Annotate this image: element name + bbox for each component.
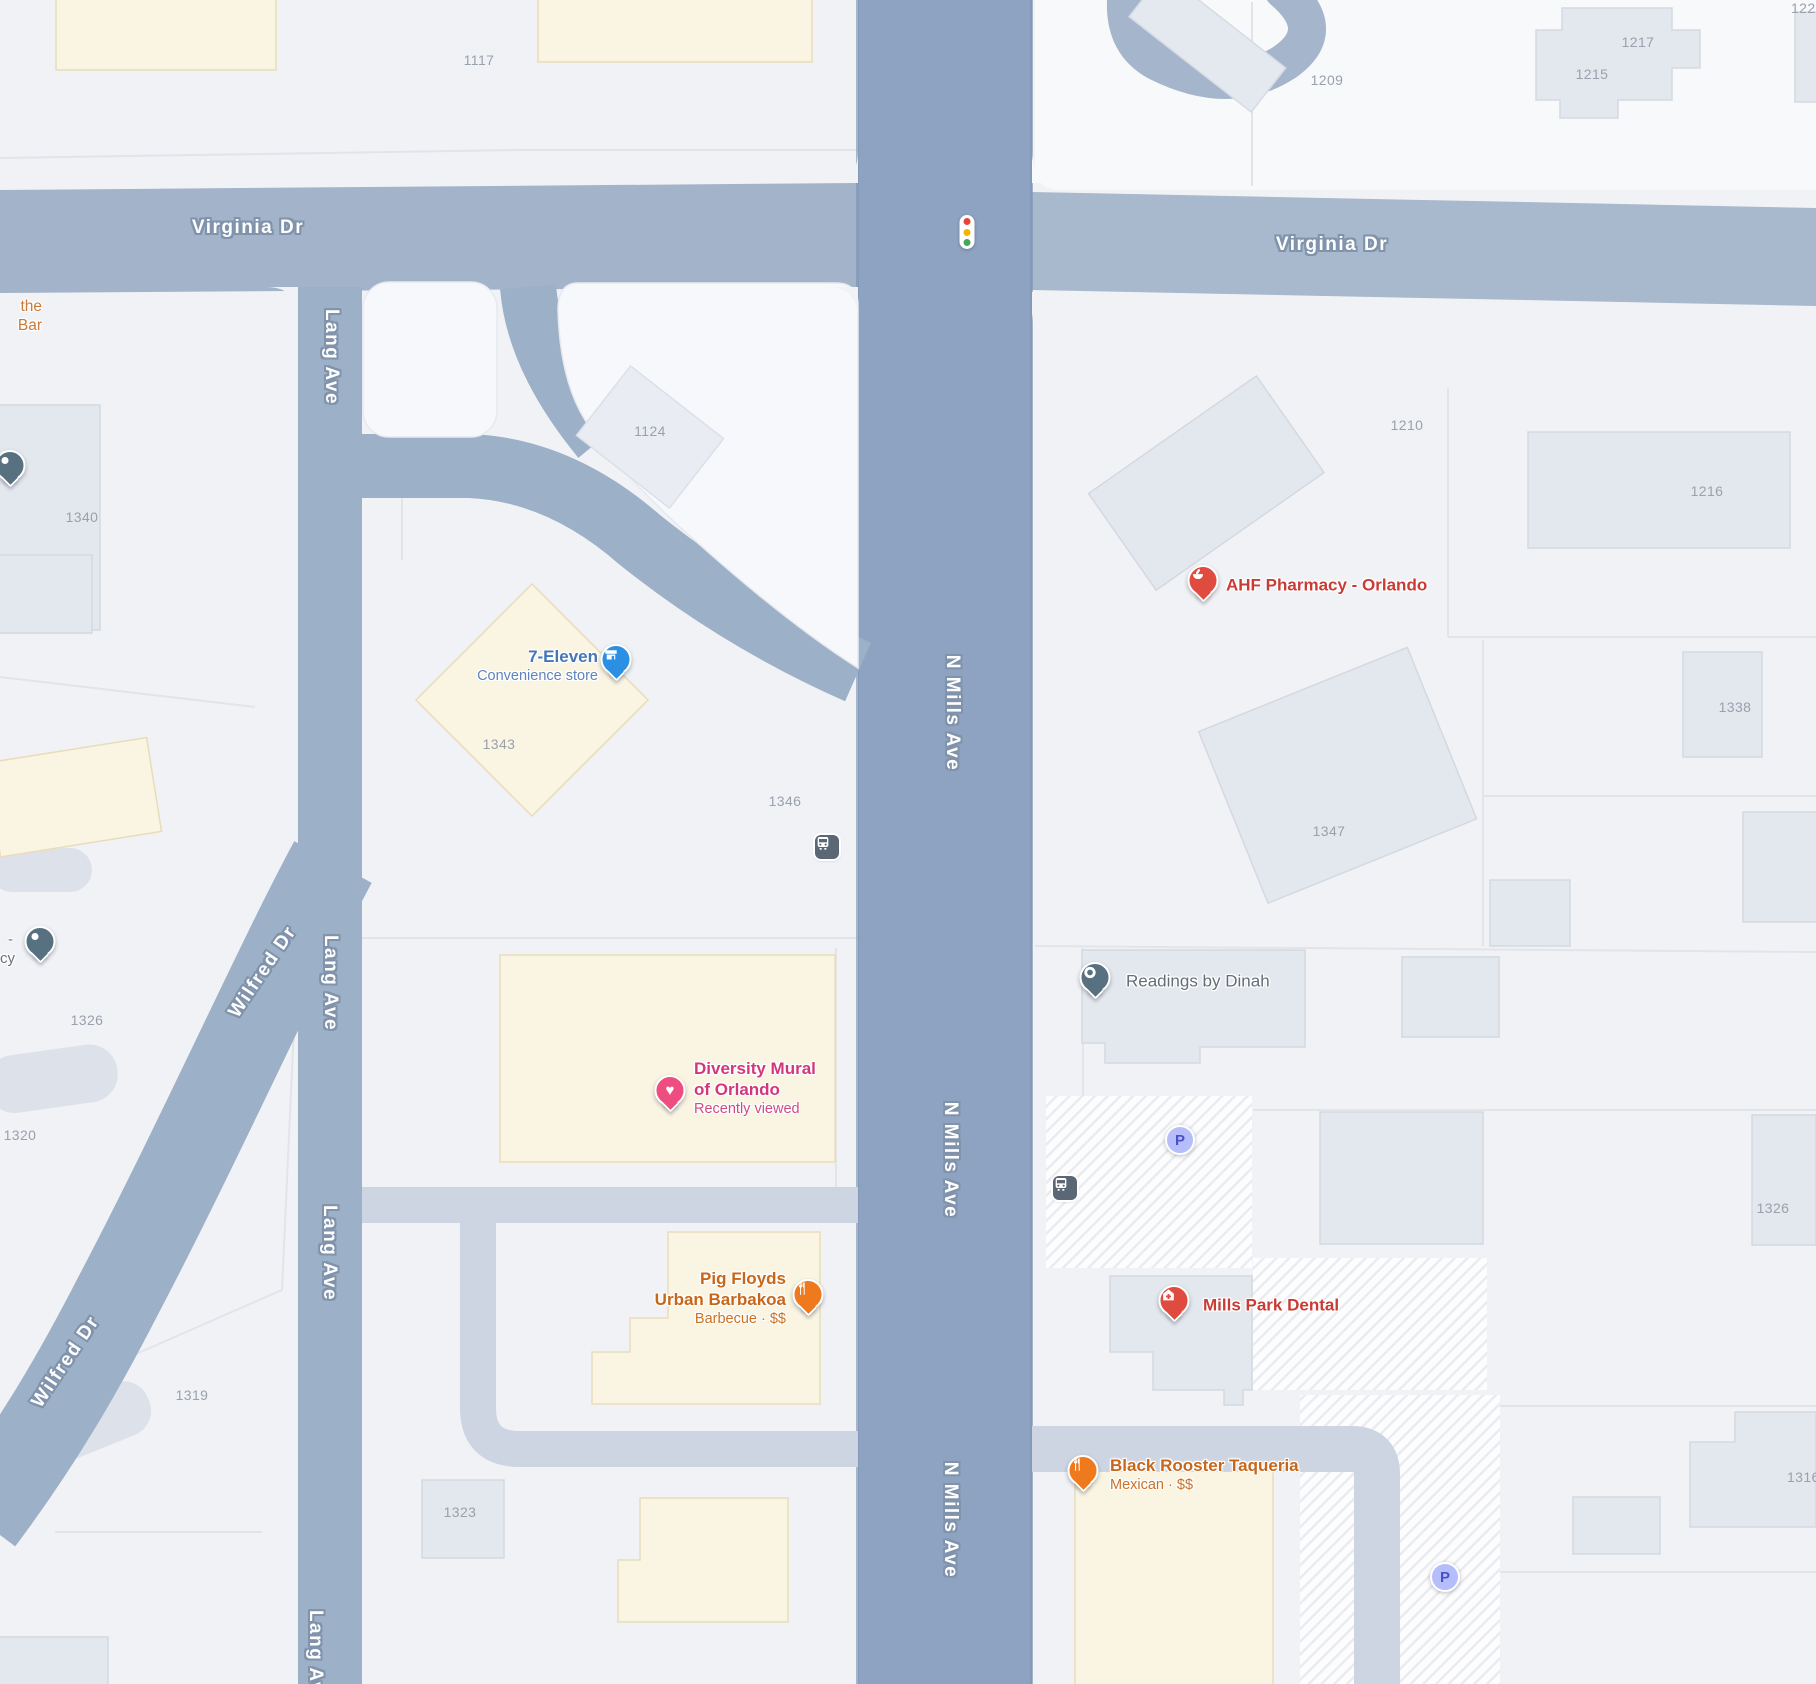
poi-dental-name[interactable]: Mills Park Dental	[1203, 1295, 1339, 1316]
road-label-virginia-dr-east: Virginia Dr	[1276, 234, 1388, 256]
parking-p-label: P	[1440, 1569, 1450, 1586]
address-1326-left: 1326	[71, 1012, 104, 1028]
mills-park-dental-pin[interactable]	[1159, 1285, 1190, 1316]
poi-label-readings[interactable]: Readings by Dinah	[1126, 971, 1270, 992]
poi-mural-status: Recently viewed	[694, 1100, 816, 1119]
parking-p-label: P	[1175, 1132, 1185, 1149]
address-122x: 122	[1791, 0, 1816, 16]
poi-pig-name-2[interactable]: Urban Barbakoa	[655, 1289, 786, 1310]
address-1347: 1347	[1313, 823, 1346, 839]
address-1215: 1215	[1576, 66, 1609, 82]
road-n-mills-ave	[858, 0, 1032, 1684]
poi-mural-name-2[interactable]: of Orlando	[694, 1079, 816, 1100]
seven-eleven-pin[interactable]	[601, 644, 632, 675]
address-1117: 1117	[464, 52, 495, 68]
address-1343: 1343	[483, 736, 516, 752]
poi-label-mills-park-dental[interactable]: Mills Park Dental	[1203, 1295, 1339, 1316]
address-1217: 1217	[1622, 34, 1655, 50]
ahf-pharmacy-pin[interactable]	[1188, 565, 1219, 596]
poi-label-black-rooster[interactable]: Black Rooster Taqueria Mexican · $$	[1110, 1455, 1299, 1495]
diversity-mural-pin[interactable]: ♥	[655, 1075, 686, 1106]
poi-readings-name[interactable]: Readings by Dinah	[1126, 971, 1270, 992]
parking-icon-1[interactable]: P	[1165, 1125, 1195, 1155]
poi-label-ahf-pharmacy[interactable]: AHF Pharmacy - Orlando	[1226, 575, 1427, 596]
road-label-virginia-dr-west: Virginia Dr	[192, 217, 304, 239]
black-rooster-pin[interactable]	[1068, 1455, 1099, 1486]
road-label-lang-4: Lang Ave	[304, 1610, 326, 1684]
poi-label-diversity-mural[interactable]: Diversity Mural of Orlando Recently view…	[694, 1058, 816, 1119]
pig-floyds-pin[interactable]	[793, 1279, 824, 1310]
address-1340: 1340	[66, 509, 99, 525]
poi-ahf-name[interactable]: AHF Pharmacy - Orlando	[1226, 575, 1427, 596]
address-1316: 1316	[1787, 1469, 1816, 1485]
poi-pig-category: Barbecue · $$	[655, 1310, 786, 1329]
map-canvas[interactable]: Virginia Dr Virginia Dr N Mills Ave N Mi…	[0, 0, 1816, 1684]
bus-stop-icon-2[interactable]	[1053, 1176, 1077, 1200]
map-base	[0, 0, 1816, 1684]
poi-rooster-name[interactable]: Black Rooster Taqueria	[1110, 1455, 1299, 1476]
poi-partial-cy-line2[interactable]: cy	[0, 949, 13, 968]
traffic-light-icon	[960, 215, 975, 249]
poi-rooster-category: Mexican · $$	[1110, 1476, 1299, 1495]
address-1338: 1338	[1719, 699, 1752, 715]
poi-label-partial-bar[interactable]: the Bar	[0, 297, 42, 335]
readings-pin[interactable]	[1080, 962, 1111, 993]
address-1319: 1319	[176, 1387, 209, 1403]
address-1323: 1323	[444, 1504, 477, 1520]
address-1346: 1346	[769, 793, 802, 809]
poi-partial-cy-line1[interactable]: -	[0, 930, 13, 949]
parking-icon-2[interactable]: P	[1430, 1562, 1460, 1592]
bus-stop-icon-1[interactable]	[815, 835, 839, 859]
road-label-lang-1: Lang Ave	[320, 309, 342, 405]
poi-label-pig-floyds[interactable]: Pig Floyds Urban Barbakoa Barbecue · $$	[655, 1268, 786, 1329]
poi-mural-name-1[interactable]: Diversity Mural	[694, 1058, 816, 1079]
heart-icon: ♥	[666, 1083, 675, 1098]
road-label-n-mills-1: N Mills Ave	[941, 655, 963, 771]
address-1326-right: 1326	[1757, 1200, 1790, 1216]
road-label-n-mills-2: N Mills Ave	[939, 1102, 961, 1218]
poi-7-eleven-category: Convenience store	[477, 667, 598, 686]
road-label-lang-3: Lang Ave	[318, 1205, 340, 1301]
address-1216: 1216	[1691, 483, 1724, 499]
bus-icon	[815, 835, 831, 851]
poi-label-7-eleven[interactable]: 7-Eleven Convenience store	[477, 646, 598, 686]
road-label-lang-2: Lang Ave	[319, 935, 341, 1031]
bus-icon	[1053, 1176, 1069, 1192]
building-1216	[1528, 432, 1790, 548]
address-1209: 1209	[1311, 72, 1344, 88]
building-readings	[1082, 950, 1305, 1063]
address-1320: 1320	[4, 1127, 37, 1143]
road-virginia-dr-east	[1032, 192, 1816, 306]
poi-partial-bar-line1[interactable]: the	[0, 297, 42, 316]
left-edge-pin-2[interactable]	[25, 926, 56, 957]
poi-label-partial-cy[interactable]: - cy	[0, 930, 13, 968]
poi-partial-bar-line2[interactable]: Bar	[0, 316, 42, 335]
poi-pig-name-1[interactable]: Pig Floyds	[655, 1268, 786, 1289]
road-label-n-mills-3: N Mills Ave	[939, 1462, 961, 1578]
poi-7-eleven-name[interactable]: 7-Eleven	[477, 646, 598, 667]
road-virginia-dr-west	[0, 183, 858, 293]
address-1210: 1210	[1391, 417, 1424, 433]
address-1124: 1124	[634, 423, 666, 439]
